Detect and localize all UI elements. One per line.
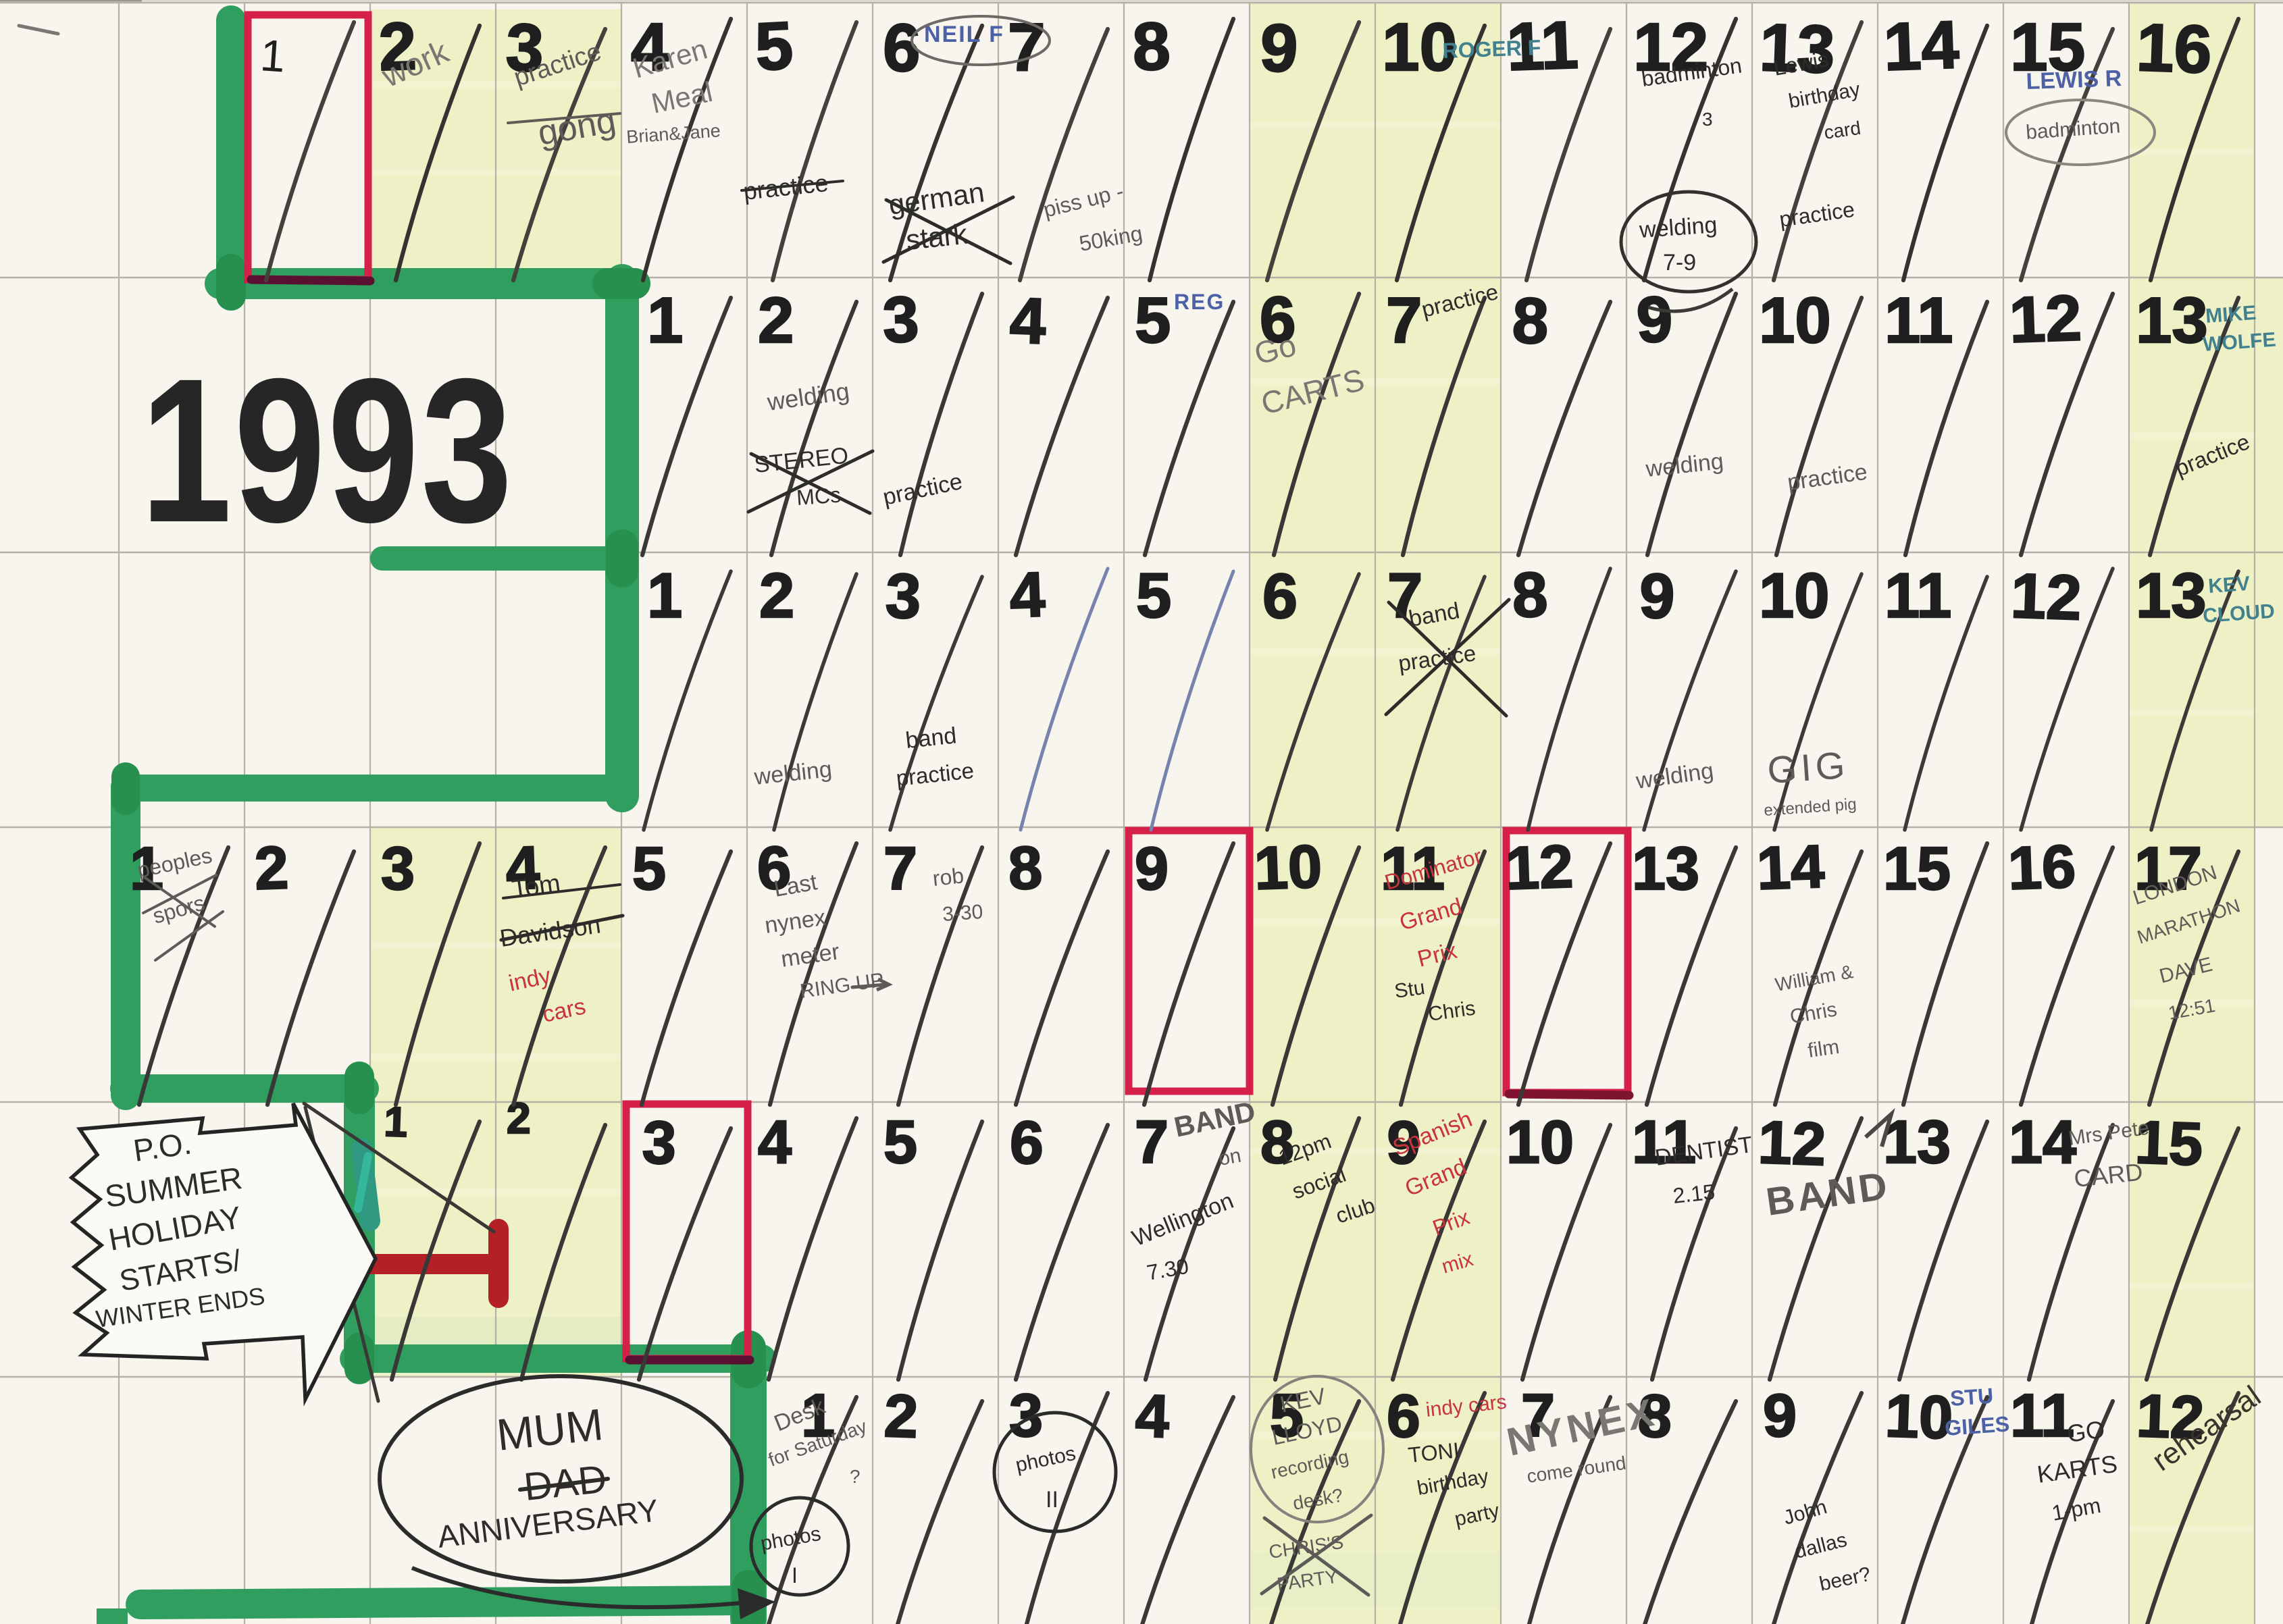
svg-text:7: 7	[1135, 1109, 1169, 1176]
svg-text:12: 12	[1757, 1109, 1827, 1178]
svg-text:4: 4	[1008, 558, 1046, 631]
svg-text:2: 2	[507, 1094, 531, 1143]
svg-text:9: 9	[1135, 835, 1169, 903]
svg-text:7: 7	[1386, 284, 1422, 357]
svg-text:13: 13	[1632, 835, 1699, 903]
svg-text:GIG: GIG	[1766, 743, 1850, 791]
svg-text:6: 6	[1008, 1109, 1045, 1178]
svg-text:6: 6	[1385, 1382, 1422, 1451]
svg-text:film: film	[1806, 1036, 1841, 1062]
svg-text:9: 9	[1638, 560, 1676, 632]
svg-text:2: 2	[253, 834, 290, 903]
svg-text:REG: REG	[1174, 290, 1225, 314]
svg-text:3: 3	[881, 283, 920, 357]
svg-text:8: 8	[1511, 284, 1549, 358]
svg-text:welding: welding	[1638, 212, 1718, 243]
svg-text:9: 9	[1258, 9, 1300, 87]
svg-text:10: 10	[1253, 833, 1323, 903]
svg-text:5: 5	[1135, 284, 1171, 357]
svg-text:on: on	[1216, 1145, 1243, 1170]
svg-text:2.15: 2.15	[1672, 1180, 1716, 1208]
svg-text:STU: STU	[1949, 1384, 1994, 1411]
svg-text:6: 6	[1261, 560, 1299, 632]
svg-text:4: 4	[758, 1109, 792, 1176]
svg-text:7-9: 7-9	[1663, 250, 1696, 276]
svg-text:I: I	[792, 1563, 798, 1588]
svg-text:8: 8	[1007, 834, 1044, 903]
svg-text:16: 16	[2135, 9, 2213, 88]
svg-text:rob: rob	[931, 863, 965, 891]
svg-text:1: 1	[259, 30, 287, 81]
svg-text:14: 14	[2009, 1109, 2076, 1176]
svg-text:2: 2	[758, 284, 794, 357]
svg-text:15: 15	[1883, 835, 1951, 903]
svg-text:10: 10	[1759, 284, 1831, 357]
svg-text:12: 12	[1504, 833, 1574, 903]
svg-text:12: 12	[2008, 282, 2082, 357]
svg-text:ROGER F: ROGER F	[1442, 35, 1541, 63]
svg-text:11: 11	[1884, 284, 1953, 357]
svg-text:1993: 1993	[140, 336, 515, 565]
svg-text:2: 2	[759, 560, 794, 631]
svg-text:8: 8	[1511, 558, 1549, 631]
svg-text:3: 3	[884, 560, 922, 632]
svg-text:LEWIS R: LEWIS R	[2026, 66, 2122, 95]
svg-text:NEIL F: NEIL F	[924, 22, 1004, 47]
svg-text:7: 7	[883, 835, 917, 903]
svg-text:KEV: KEV	[2207, 573, 2251, 598]
svg-text:GO: GO	[2065, 1415, 2106, 1448]
svg-text:14: 14	[1882, 7, 1960, 85]
svg-text:5: 5	[632, 835, 666, 903]
svg-text:3: 3	[381, 835, 415, 903]
svg-text:12: 12	[2009, 560, 2082, 633]
svg-text:2: 2	[883, 1382, 919, 1451]
svg-text:11: 11	[2010, 1382, 2074, 1450]
svg-text:3-30: 3-30	[942, 901, 983, 926]
svg-text:1: 1	[647, 284, 683, 357]
svg-text:9: 9	[1763, 1382, 1797, 1450]
svg-text:II: II	[1046, 1487, 1058, 1513]
svg-text:13: 13	[2136, 560, 2207, 631]
svg-text:14: 14	[1755, 833, 1826, 903]
svg-text:7: 7	[1008, 9, 1046, 85]
svg-text:MIKE: MIKE	[2205, 302, 2257, 328]
svg-text:5: 5	[753, 7, 794, 85]
svg-text:5: 5	[883, 1109, 917, 1176]
svg-text:5: 5	[1136, 560, 1171, 631]
svg-text:13: 13	[2136, 284, 2208, 357]
svg-text:16: 16	[2007, 833, 2077, 903]
svg-text:4: 4	[1008, 284, 1047, 358]
svg-text:?: ?	[850, 1466, 861, 1487]
svg-text:11: 11	[1884, 560, 1951, 631]
svg-text:band: band	[904, 723, 958, 754]
svg-text:GILES: GILES	[1944, 1411, 2010, 1440]
svg-text:1: 1	[647, 560, 682, 631]
svg-text:13: 13	[1883, 1109, 1951, 1176]
svg-text:9: 9	[1635, 283, 1674, 357]
svg-text:8: 8	[1131, 8, 1171, 85]
svg-text:3: 3	[1702, 109, 1713, 130]
svg-text:4: 4	[1134, 1382, 1171, 1451]
svg-text:Stu: Stu	[1393, 976, 1426, 1003]
svg-text:3: 3	[641, 1109, 677, 1178]
svg-text:10: 10	[1506, 1109, 1574, 1176]
svg-text:10: 10	[1759, 560, 1830, 631]
